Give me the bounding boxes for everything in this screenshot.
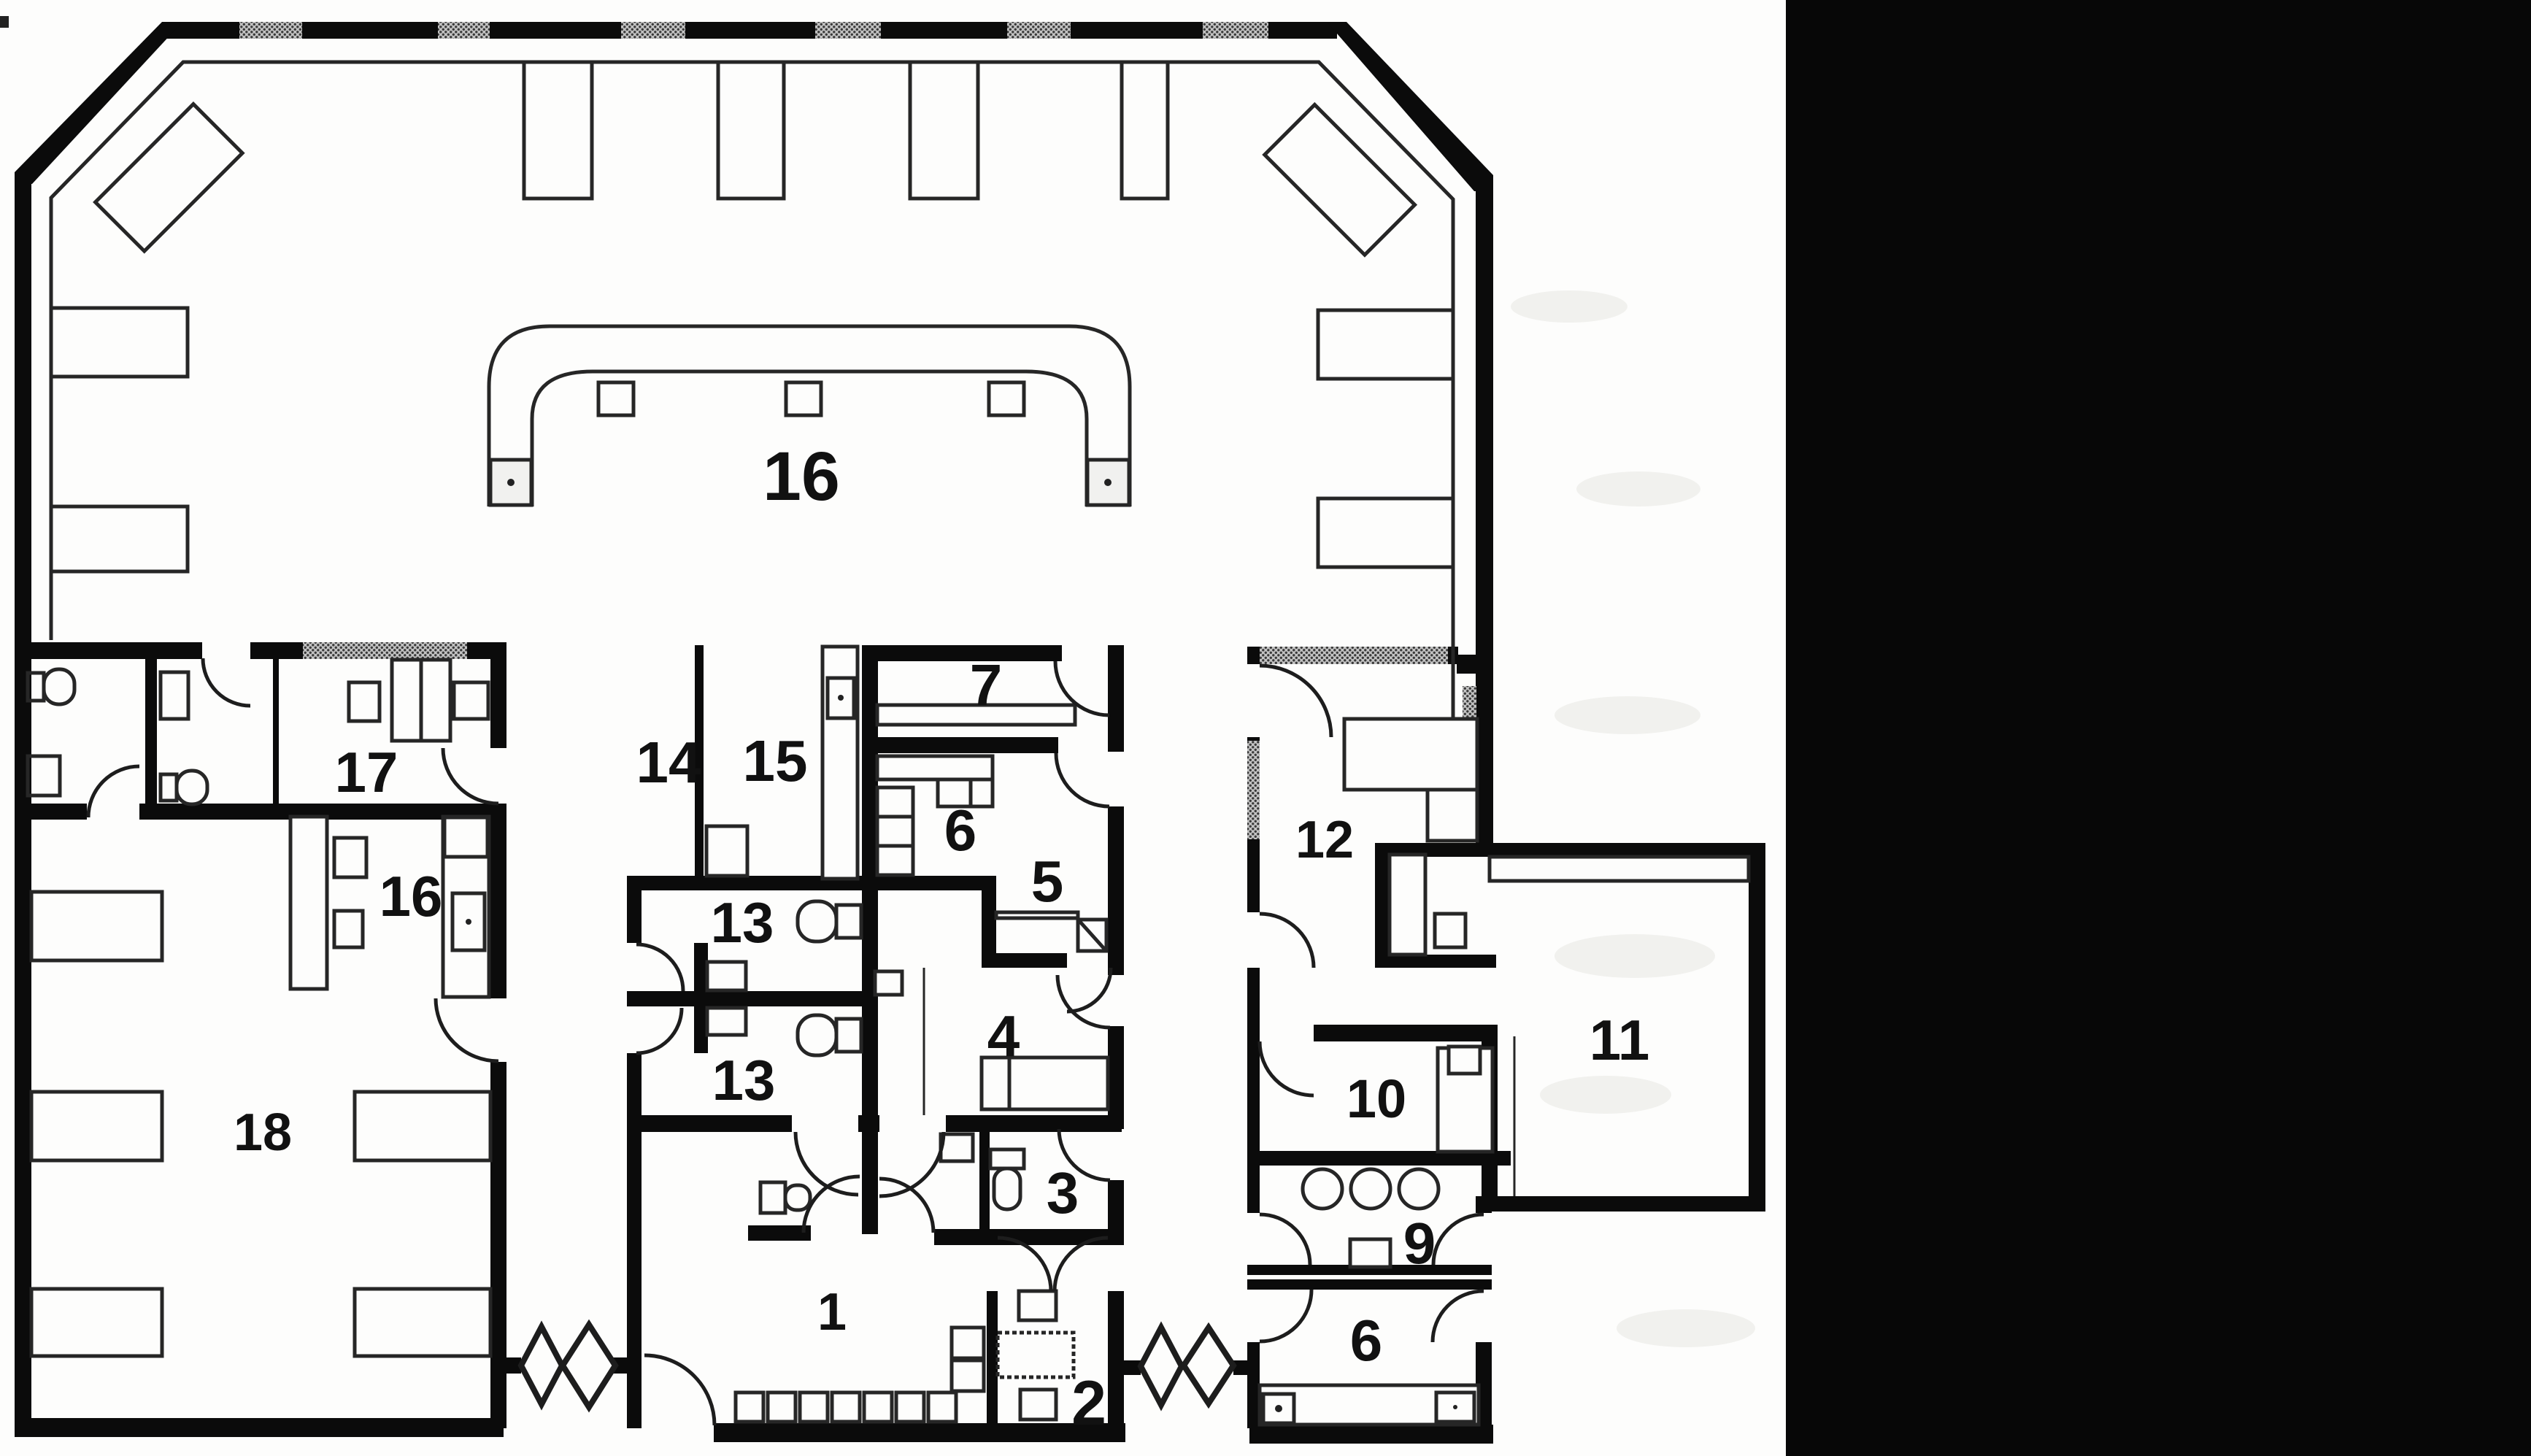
svg-text:6: 6	[944, 798, 977, 863]
svg-text:16: 16	[763, 438, 840, 515]
svg-text:14: 14	[636, 730, 701, 795]
svg-text:3: 3	[1047, 1160, 1079, 1225]
svg-text:12: 12	[1295, 811, 1354, 869]
svg-text:6: 6	[1350, 1308, 1383, 1373]
svg-text:1: 1	[817, 1283, 847, 1341]
svg-text:16: 16	[380, 864, 443, 928]
svg-text:4: 4	[987, 1004, 1020, 1068]
svg-text:7: 7	[970, 652, 1003, 717]
svg-text:18: 18	[234, 1103, 292, 1162]
svg-text:15: 15	[743, 728, 808, 793]
svg-text:13: 13	[712, 1048, 776, 1112]
svg-text:2: 2	[1071, 1368, 1106, 1438]
svg-text:11: 11	[1590, 1008, 1649, 1072]
svg-text:13: 13	[711, 890, 774, 955]
svg-text:10: 10	[1347, 1068, 1406, 1129]
svg-text:17: 17	[335, 740, 398, 804]
svg-text:5: 5	[1031, 849, 1064, 914]
svg-text:9: 9	[1403, 1211, 1436, 1276]
